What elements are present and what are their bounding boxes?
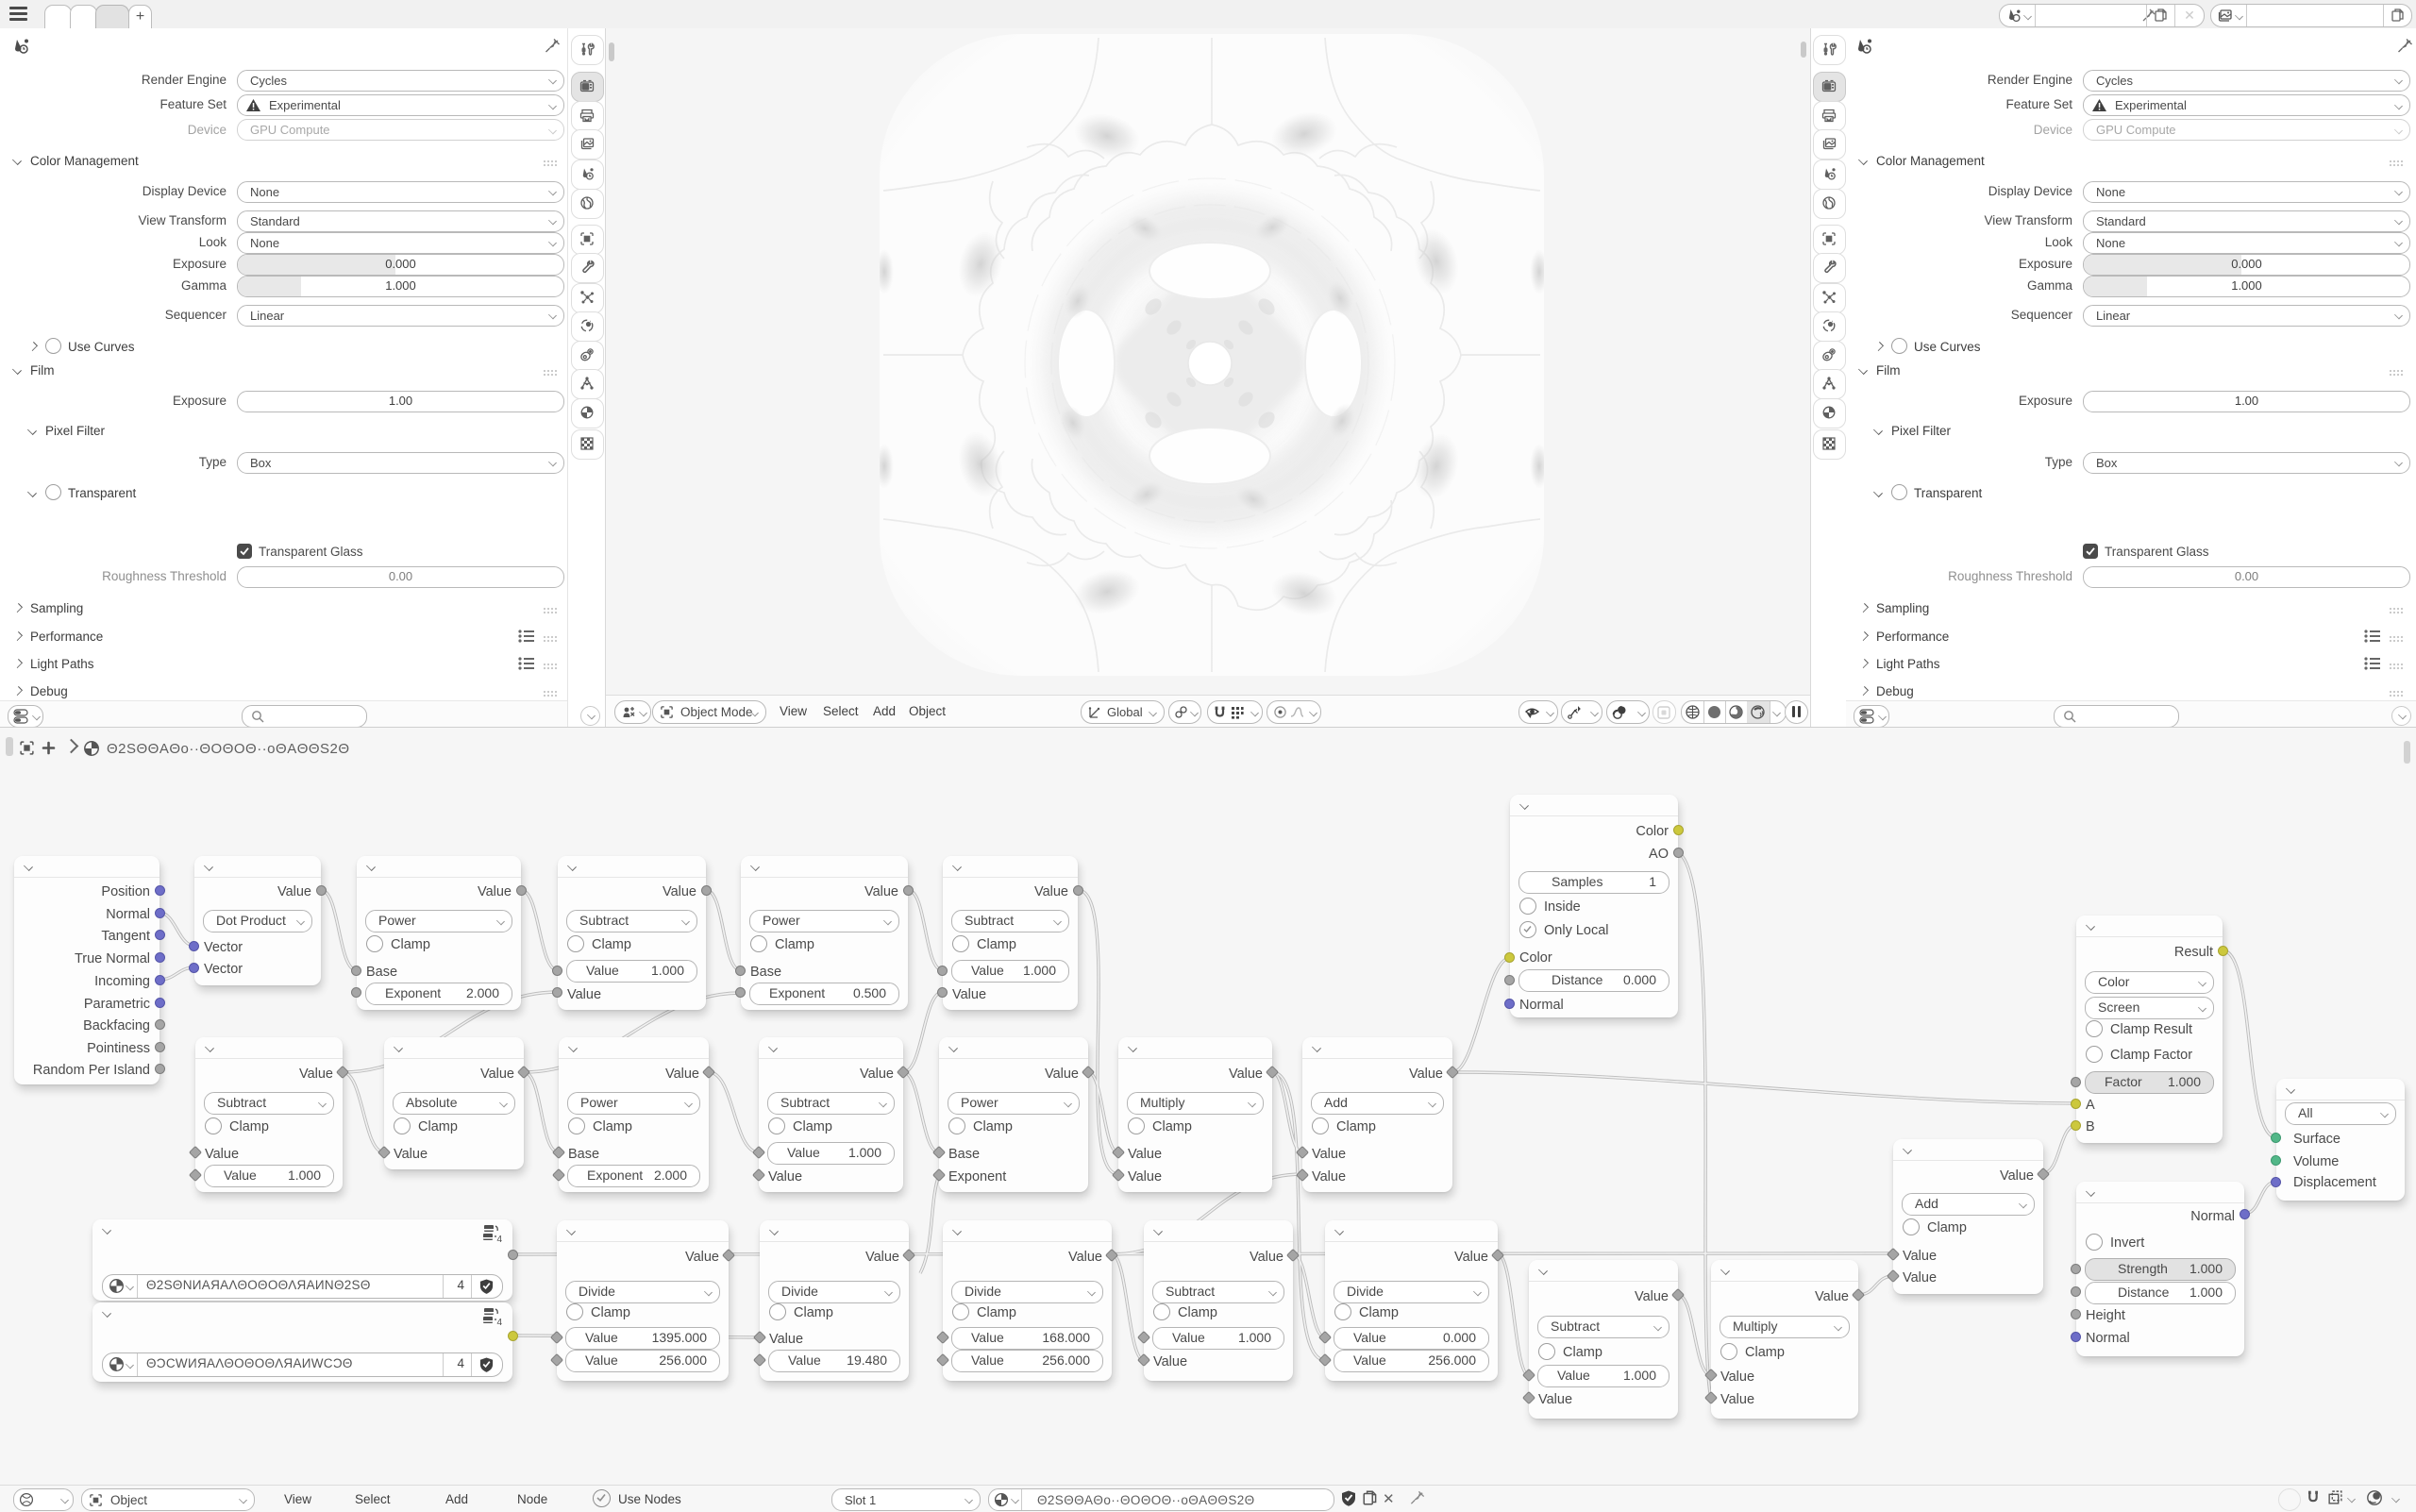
svg-text:4: 4 — [497, 1235, 503, 1245]
svg-text:4: 4 — [497, 1318, 503, 1328]
